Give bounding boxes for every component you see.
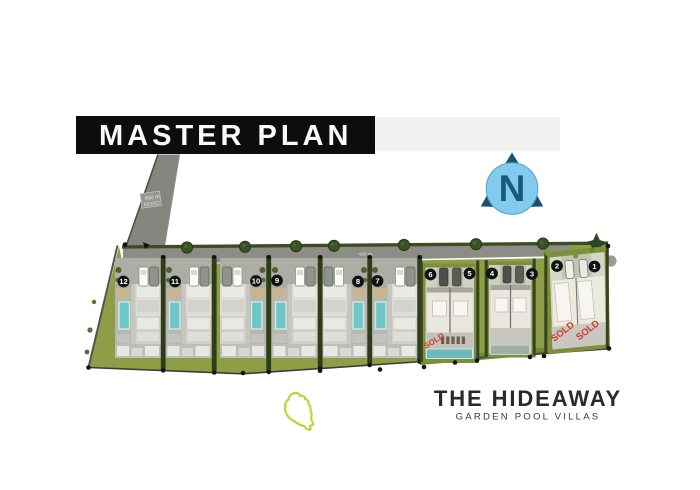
svg-text:THE HIDEAWAY: THE HIDEAWAY xyxy=(434,386,622,411)
svg-text:2: 2 xyxy=(555,262,559,271)
svg-text:6: 6 xyxy=(428,270,432,279)
svg-text:8: 8 xyxy=(356,277,360,286)
svg-text:7: 7 xyxy=(375,277,379,286)
svg-text:9: 9 xyxy=(275,276,279,285)
svg-text:11: 11 xyxy=(171,277,180,286)
svg-text:10: 10 xyxy=(252,277,260,286)
svg-text:N: N xyxy=(499,168,526,209)
svg-text:12: 12 xyxy=(119,277,127,286)
svg-text:3: 3 xyxy=(530,270,534,279)
svg-text:GARDEN POOL VILLAS: GARDEN POOL VILLAS xyxy=(456,412,601,423)
svg-text:MASTER PLAN: MASTER PLAN xyxy=(99,120,352,152)
